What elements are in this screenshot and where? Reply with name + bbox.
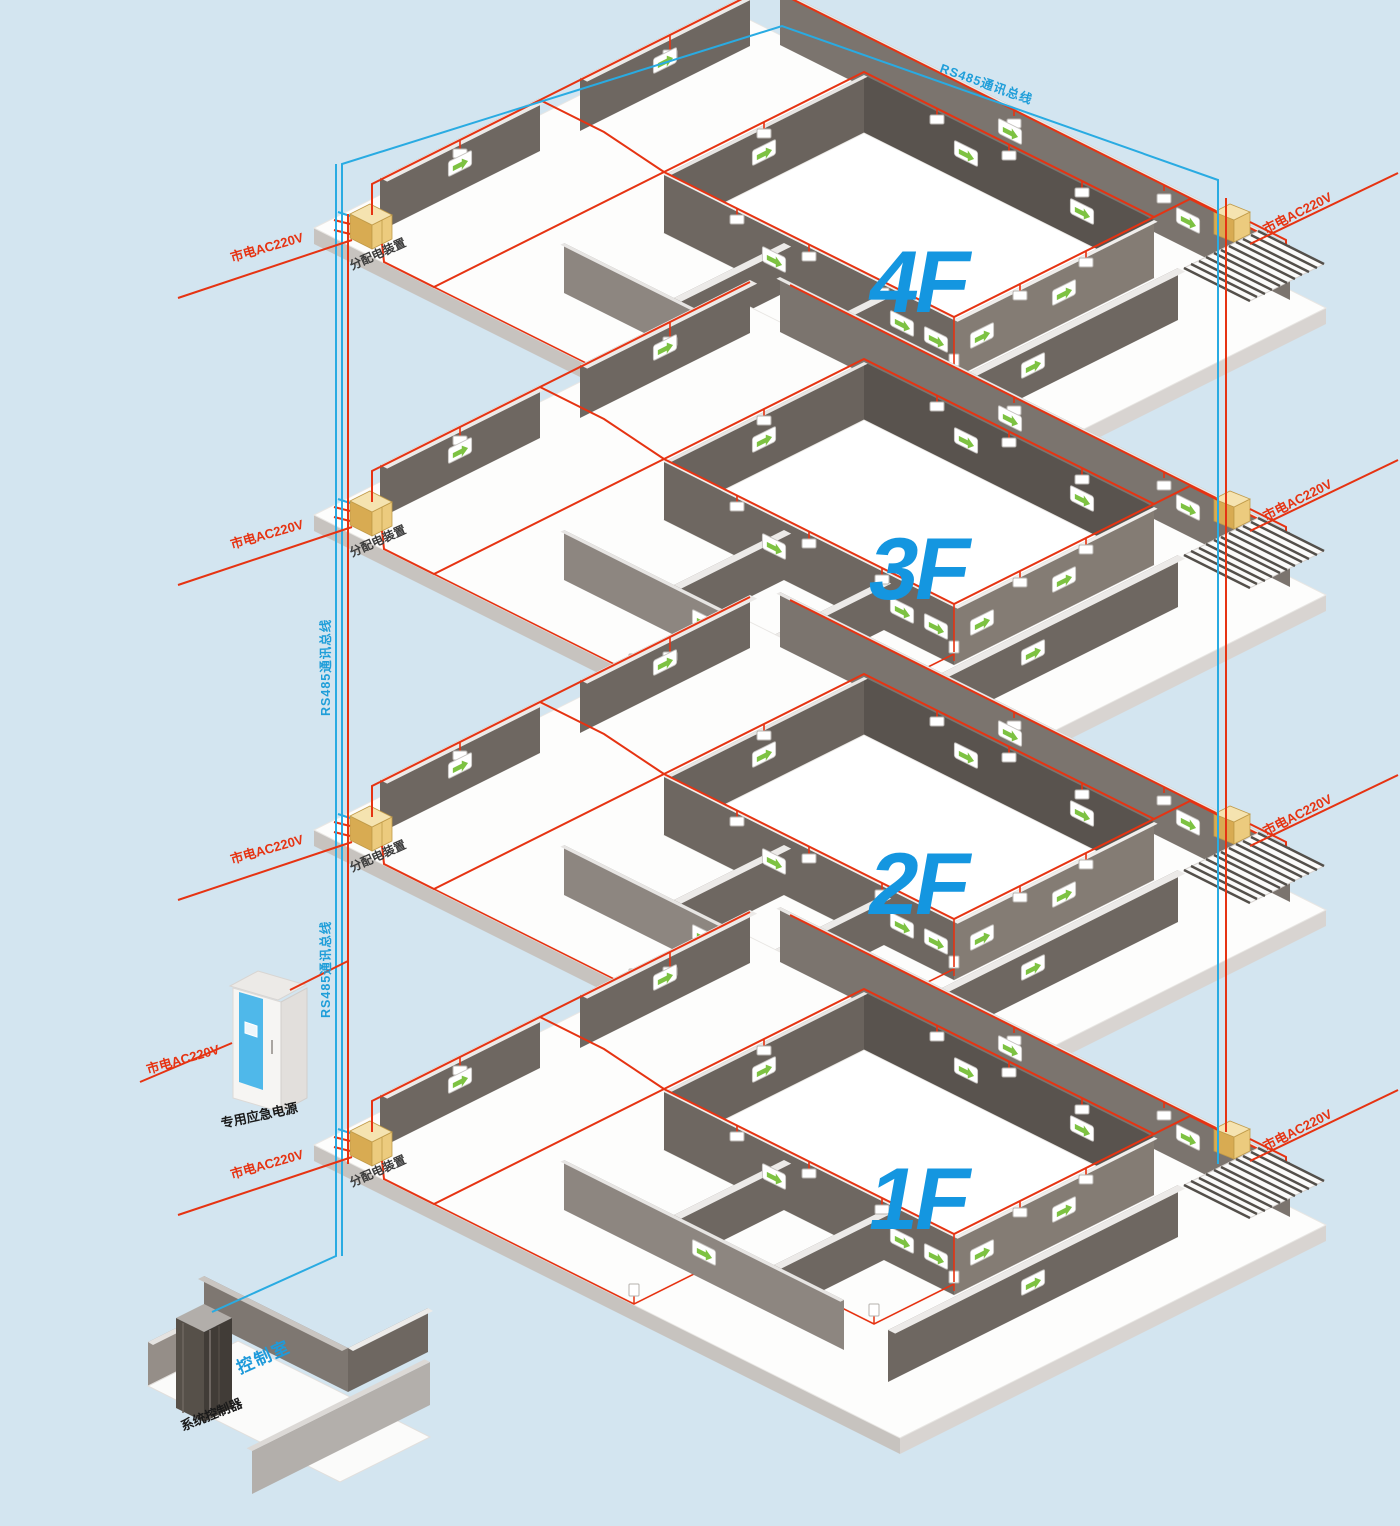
building-evacuation-wiring-diagram: 4F 3F 2F 1F 市电AC220V 市电AC220V 市电AC220V 市… [0, 0, 1400, 1526]
psu-blue-panel [239, 992, 263, 1090]
mains-label-4f-right: 市电AC220V [1261, 189, 1335, 237]
rs485-riser-label-lower: RS485通讯总线 [318, 921, 333, 1018]
controller-front [176, 1318, 204, 1422]
rs485-bus-riser-left-a [212, 164, 336, 1312]
floor-label-2f: 2F [862, 835, 976, 933]
floor-label-3f: 3F [862, 520, 976, 618]
rs485-riser-label-upper: RS485通讯总线 [318, 619, 333, 716]
mains-label-3f-right: 市电AC220V [1261, 476, 1335, 524]
emergency-power-supply-cabinet [230, 971, 307, 1112]
control-room [148, 1276, 433, 1494]
diagram-canvas: 4F 3F 2F 1F 市电AC220V 市电AC220V 市电AC220V 市… [0, 0, 1400, 1526]
mains-label-psu: 市电AC220V [145, 1042, 222, 1077]
mains-label-2f-right: 市电AC220V [1261, 791, 1335, 839]
mains-label-1f-right: 市电AC220V [1261, 1106, 1335, 1154]
floor-label-1f: 1F [862, 1150, 976, 1248]
psu-side [281, 988, 307, 1112]
floor-label-4f: 4F [862, 233, 976, 331]
